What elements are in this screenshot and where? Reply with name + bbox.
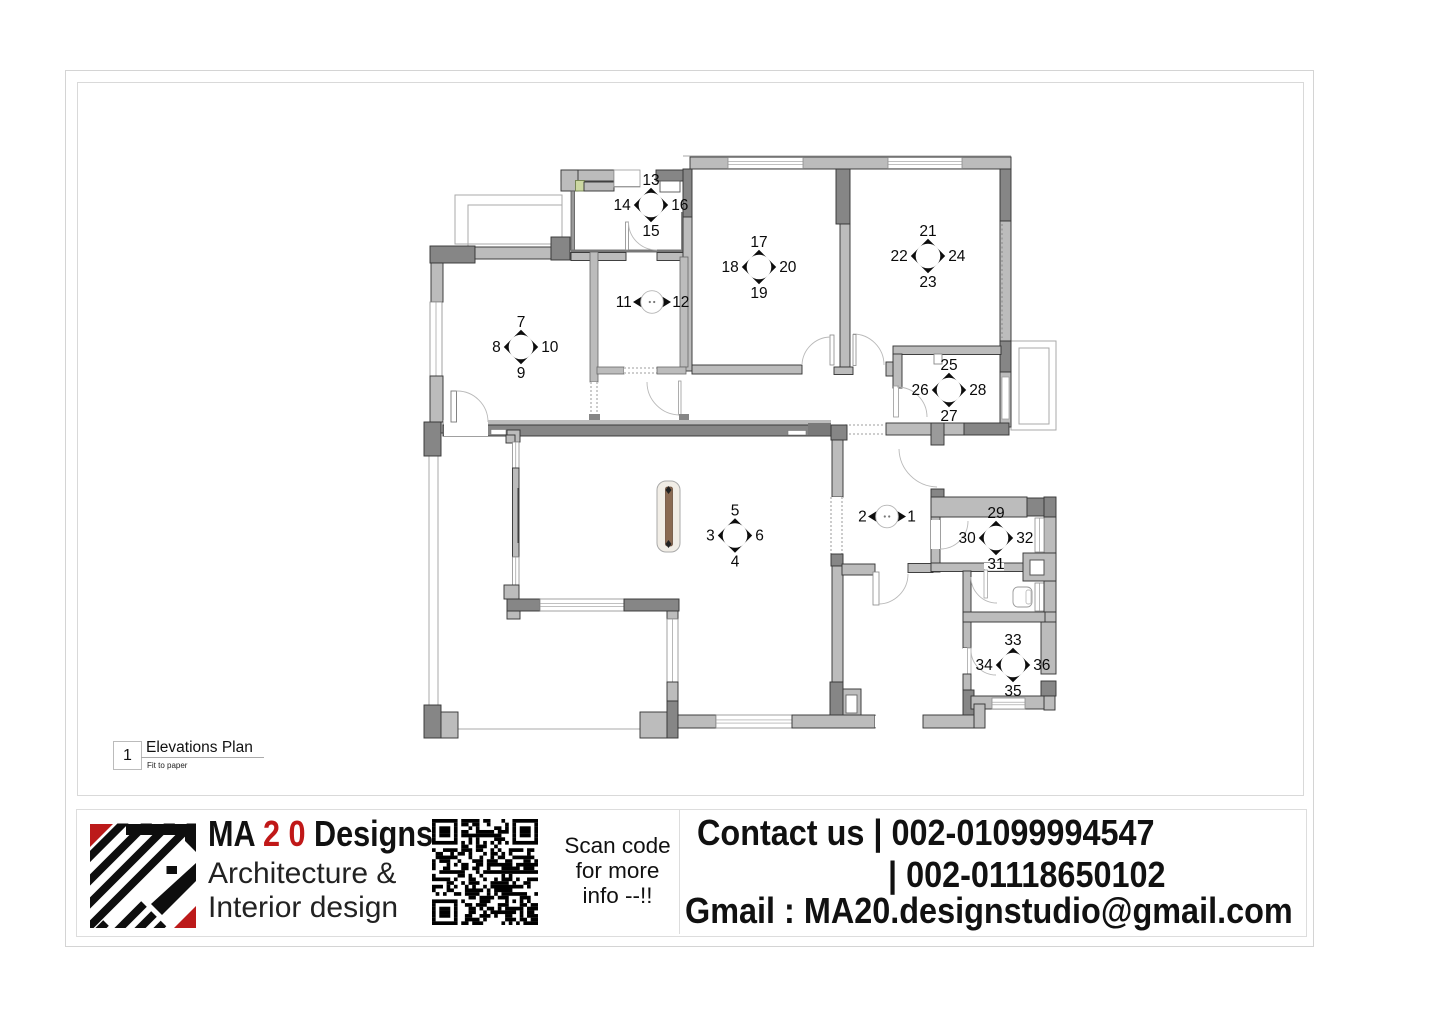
svg-text:9: 9 [517,365,526,382]
svg-text:21: 21 [919,223,936,240]
svg-text:36: 36 [1033,657,1050,674]
svg-text:17: 17 [750,234,767,251]
svg-text:22: 22 [891,248,908,265]
svg-text:25: 25 [940,357,957,374]
svg-text:13: 13 [642,172,659,189]
svg-text:31: 31 [987,556,1004,573]
svg-text:19: 19 [750,285,767,302]
svg-text:35: 35 [1004,683,1021,700]
svg-text:3: 3 [706,528,715,545]
svg-text:34: 34 [976,657,994,674]
svg-text:26: 26 [912,382,929,399]
svg-text:2: 2 [858,509,867,526]
svg-text:5: 5 [731,502,740,519]
svg-text:18: 18 [722,259,739,276]
svg-text:4: 4 [731,554,740,571]
svg-text:14: 14 [614,197,632,214]
svg-text:6: 6 [755,528,764,545]
svg-text:28: 28 [969,382,986,399]
svg-text:15: 15 [642,223,659,240]
svg-text:10: 10 [541,339,559,356]
svg-text:12: 12 [672,294,689,311]
svg-text:11: 11 [616,294,632,311]
svg-text:33: 33 [1004,632,1021,649]
svg-text:29: 29 [987,505,1004,522]
svg-text:27: 27 [940,408,957,425]
svg-text:7: 7 [517,314,526,331]
svg-text:23: 23 [919,274,936,291]
svg-text:30: 30 [959,530,977,547]
svg-text:32: 32 [1016,530,1033,547]
svg-text:16: 16 [671,197,688,214]
svg-text:1: 1 [907,509,916,526]
svg-text:20: 20 [779,259,797,276]
svg-text:24: 24 [948,248,966,265]
svg-text:8: 8 [492,339,501,356]
